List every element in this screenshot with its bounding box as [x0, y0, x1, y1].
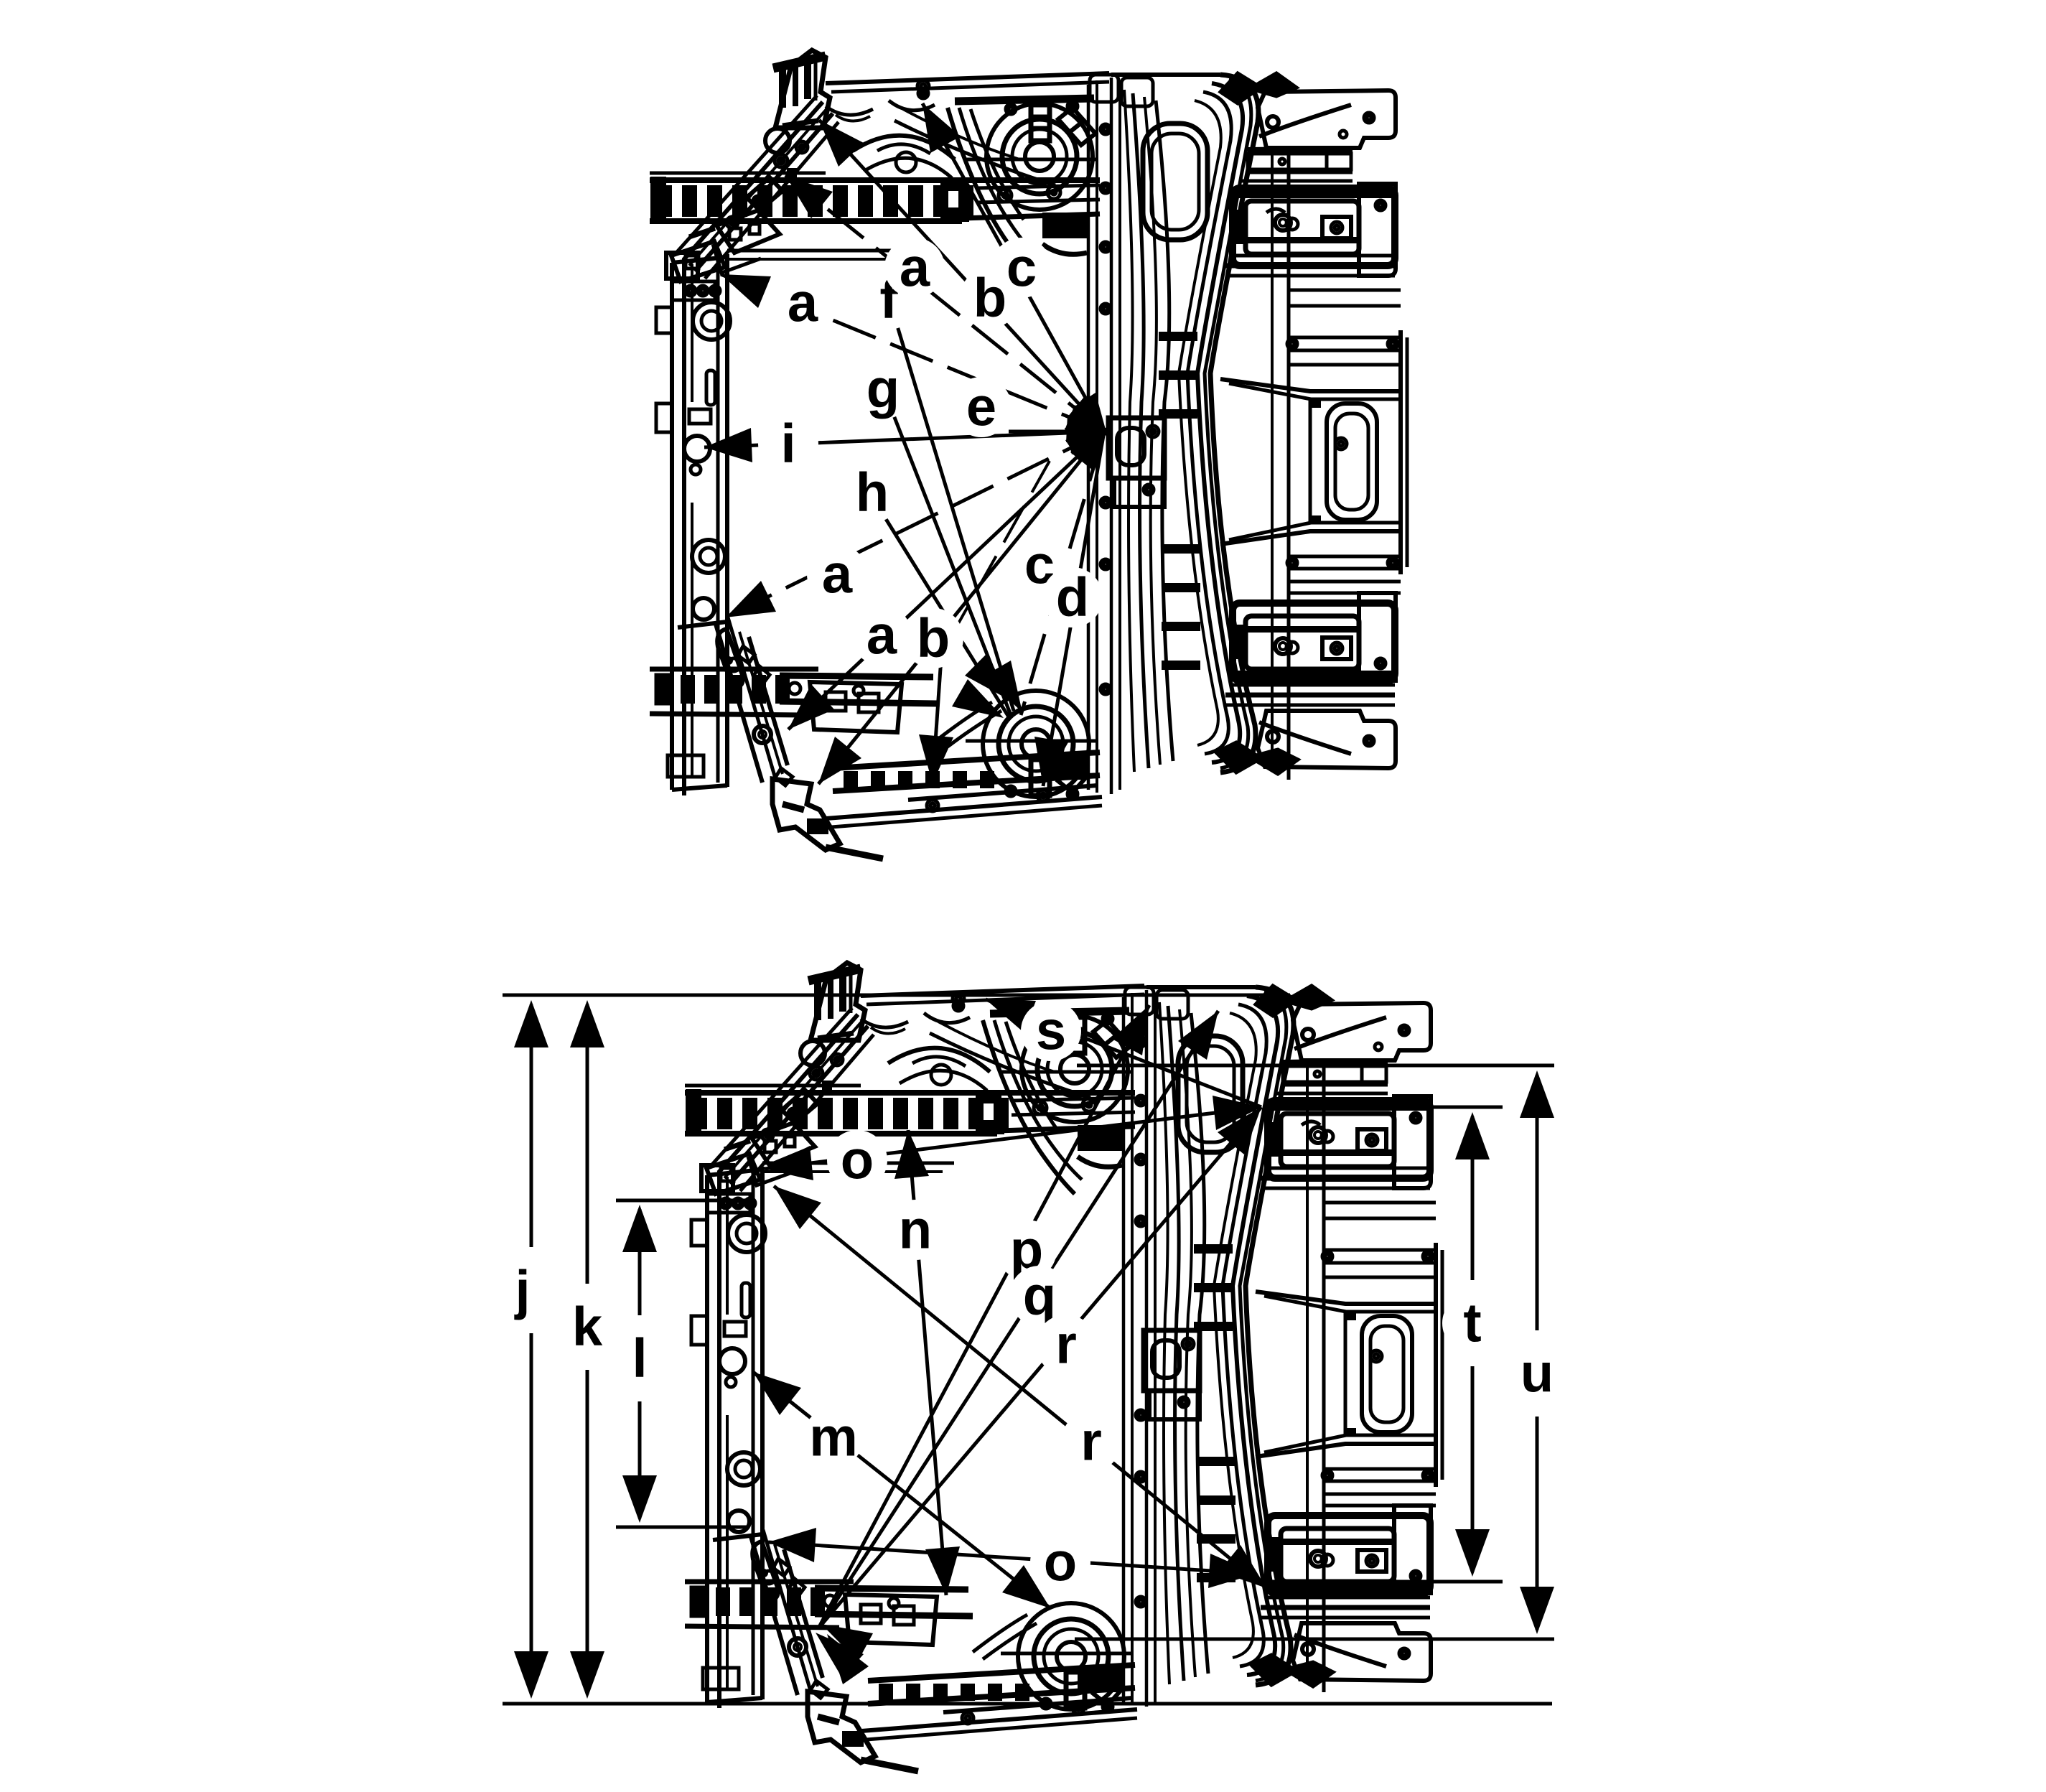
svg-text:b: b [917, 608, 950, 669]
svg-text:a: a [900, 238, 930, 299]
svg-text:n: n [899, 1200, 932, 1261]
svg-text:a: a [866, 605, 897, 666]
svg-text:l: l [632, 1328, 647, 1389]
svg-text:i: i [780, 414, 795, 475]
svg-text:h: h [856, 462, 889, 523]
svg-text:q: q [1023, 1266, 1056, 1327]
svg-text:k: k [572, 1297, 603, 1358]
svg-text:r: r [1080, 1411, 1102, 1473]
svg-text:o: o [1044, 1532, 1077, 1593]
svg-text:a: a [788, 273, 818, 334]
svg-text:d: d [1056, 567, 1089, 628]
svg-text:e: e [966, 377, 996, 438]
svg-text:g: g [866, 359, 900, 420]
svg-text:j: j [513, 1260, 530, 1321]
svg-text:m: m [809, 1407, 858, 1468]
svg-text:o: o [841, 1130, 874, 1191]
svg-text:t: t [1463, 1293, 1481, 1354]
svg-text:s: s [1036, 1001, 1066, 1062]
svg-text:c: c [1006, 238, 1037, 299]
svg-text:r: r [1055, 1315, 1077, 1376]
svg-text:a: a [822, 544, 853, 605]
svg-text:u: u [1521, 1343, 1554, 1404]
